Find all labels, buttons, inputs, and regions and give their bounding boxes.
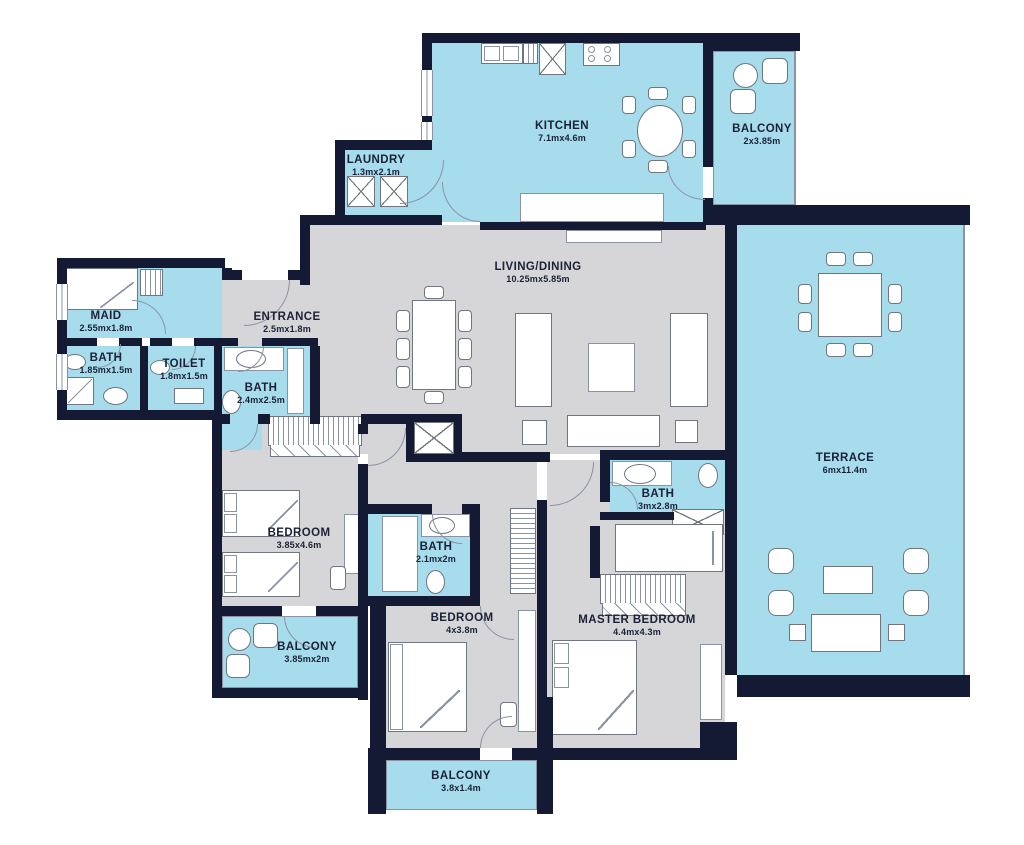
room-label-balcony-bottom: BALCONY 3.8x1.4m <box>431 769 491 795</box>
dining-chair <box>396 310 410 332</box>
dining-chair <box>424 391 444 404</box>
wall-segment <box>358 424 368 434</box>
kitchen-breakfast-bar <box>520 193 664 222</box>
shower <box>382 516 418 592</box>
closet-handle <box>712 531 714 565</box>
bed-fold-line <box>268 562 298 592</box>
room-name: BALCONY <box>277 640 337 654</box>
room-dims: 2x3.85m <box>732 136 792 147</box>
wall-segment <box>316 606 358 616</box>
room-label-bedroom-2: BEDROOM 4x3.8m <box>431 611 494 637</box>
stove-burner <box>588 46 595 53</box>
wall-segment <box>140 346 148 420</box>
terrace-sofa <box>811 614 881 652</box>
terrace-side-table <box>888 624 905 641</box>
room-label-maid: MAID 2.55mx1.8m <box>79 309 132 335</box>
room-dims: 7.1mx4.6m <box>535 133 589 144</box>
dining-table <box>412 300 456 390</box>
room-label-maid-bath: BATH 1.85mx1.5m <box>79 351 132 377</box>
kitchen-oven <box>539 43 566 75</box>
shower-line <box>68 379 92 403</box>
dining-chair <box>458 366 472 388</box>
floor-plan: KITCHEN 7.1mx4.6m BALCONY 2x3.85m LAUNDR… <box>0 0 1024 845</box>
wall-segment <box>462 504 480 514</box>
wall-segment <box>212 688 368 698</box>
wall-segment <box>119 338 142 346</box>
pillow <box>224 575 237 593</box>
dining-chair <box>396 338 410 360</box>
wall-segment <box>258 414 270 424</box>
room-name: BATH <box>237 381 285 395</box>
wall-segment <box>150 338 172 346</box>
terrace-chair <box>853 343 873 357</box>
wall-segment <box>600 450 737 460</box>
terrace-chair <box>826 343 846 357</box>
sink-counter <box>174 388 204 404</box>
room-dims: 2.1mx2m <box>416 554 456 565</box>
toilet <box>698 463 718 488</box>
wall-segment <box>57 338 97 346</box>
stove-burner <box>604 55 611 62</box>
kitchen-chair <box>648 160 668 173</box>
wall-segment <box>310 346 320 424</box>
window <box>421 122 433 140</box>
terrace-lounge-chair <box>903 548 929 574</box>
sink <box>624 464 656 484</box>
wall-segment <box>703 43 713 167</box>
room-dims: 10.25mx5.85m <box>495 274 582 285</box>
kitchen-sink-bowl <box>484 46 500 61</box>
room-label-toilet: TOILET 1.8mx1.5m <box>160 357 208 383</box>
window <box>56 284 68 320</box>
room-name: TOILET <box>160 357 208 371</box>
bath-cabinet <box>287 348 304 414</box>
terrace-side-table <box>789 624 806 641</box>
wall-segment <box>600 512 674 520</box>
sofa <box>670 313 708 407</box>
pillow <box>224 493 237 512</box>
wall-segment <box>600 460 610 502</box>
terrace-chair <box>888 284 902 304</box>
wall-segment <box>222 270 242 280</box>
wall-segment <box>368 504 432 514</box>
wall-segment <box>288 270 310 280</box>
wall-segment <box>310 215 442 225</box>
kitchen-chair <box>682 96 696 114</box>
room-label-balcony-left: BALCONY 3.85mx2m <box>277 640 337 666</box>
wall-segment <box>222 338 238 346</box>
balcony-chair <box>762 58 788 84</box>
kitchen-sink-bowl <box>503 46 519 61</box>
room-name: BEDROOM <box>431 611 494 625</box>
room-label-laundry: LAUNDRY 1.3mx2.1m <box>347 153 406 179</box>
room-dims: 1.85mx1.5m <box>79 365 132 376</box>
desk-chair <box>330 566 346 590</box>
room-dims: 3.85mx2m <box>277 654 337 665</box>
desk <box>518 610 536 732</box>
room-label-guest-bath: BATH 2.4mx2.5m <box>237 381 285 407</box>
room-dims: 2.4mx2.5m <box>237 395 285 406</box>
sink <box>103 387 128 405</box>
room-name: LAUNDRY <box>347 153 406 167</box>
coffee-table <box>588 343 635 392</box>
balcony-table <box>226 654 250 678</box>
room-name: BEDROOM <box>268 526 331 540</box>
room-label-terrace: TERRACE 6mx11.4m <box>816 451 874 477</box>
pillow <box>554 643 569 664</box>
room-name: MAID <box>79 309 132 323</box>
window <box>56 354 68 390</box>
kitchen-round-table <box>637 105 683 157</box>
room-label-entrance: ENTRANCE 2.5mx1.8m <box>253 310 320 336</box>
wall-segment <box>212 414 230 424</box>
wall-segment <box>262 338 318 346</box>
balcony-chair <box>253 623 278 648</box>
washing-machine <box>347 176 375 207</box>
window-line <box>794 51 796 205</box>
room-name: BATH <box>79 351 132 365</box>
column <box>414 422 454 454</box>
wall-segment <box>590 526 600 578</box>
room-label-bedroom-1: BEDROOM 3.85x4.6m <box>268 526 331 552</box>
room-label-master-bedroom: MASTER BEDROOM 4.4mx4.3m <box>578 613 695 639</box>
dining-chair <box>458 310 472 332</box>
terrace-chair <box>853 252 873 266</box>
wall-segment <box>713 33 800 51</box>
kitchen-drainer <box>523 43 538 64</box>
room-name: BATH <box>638 487 678 501</box>
wall-segment <box>537 697 553 814</box>
stove-burner <box>588 55 595 62</box>
dining-chair <box>396 366 410 388</box>
wall-segment <box>335 150 345 215</box>
hall-wardrobe <box>510 508 536 594</box>
stove-burner <box>604 46 611 53</box>
pillow <box>224 514 237 533</box>
wall-segment <box>368 760 386 814</box>
room-name: BALCONY <box>732 122 792 136</box>
terrace-lounge-chair <box>903 590 929 616</box>
kitchen-chair <box>682 140 696 158</box>
terrace-chair <box>798 284 812 304</box>
wardrobe-front <box>270 445 360 457</box>
terrace-table <box>818 273 882 337</box>
wall-segment <box>713 205 970 225</box>
room-name: BALCONY <box>431 769 491 783</box>
pillow <box>224 555 237 573</box>
wall-segment <box>212 424 222 696</box>
sofa <box>567 415 660 447</box>
wall-segment <box>358 464 368 616</box>
dining-chair <box>424 286 444 299</box>
dining-chair <box>458 338 472 360</box>
terrace-chair <box>888 312 902 332</box>
sofa <box>515 313 552 407</box>
window <box>421 70 433 116</box>
bed-fold-line <box>598 690 634 730</box>
room-name: MASTER BEDROOM <box>578 613 695 627</box>
terrace-lounge-chair <box>768 590 794 616</box>
wall-segment <box>470 514 480 606</box>
room-dims: 1.3mx2.1m <box>347 167 406 178</box>
kitchen-chair <box>622 96 636 114</box>
bed-fold-line <box>100 282 134 308</box>
pillow <box>554 667 569 688</box>
room-label-living-dining: LIVING/DINING 10.25mx5.85m <box>495 260 582 286</box>
balcony-chair <box>733 63 758 88</box>
room-dims: 1.8mx1.5m <box>160 371 208 382</box>
balcony-table <box>730 89 756 114</box>
room-dims: 3mx2.8m <box>638 501 678 512</box>
room-label-bath-2: BATH 2.1mx2m <box>416 540 456 566</box>
kitchen-chair <box>622 140 636 158</box>
terrace-chair <box>826 252 846 266</box>
room-dims: 3.85x4.6m <box>268 540 331 551</box>
wall-segment <box>361 414 409 424</box>
kitchen-chair <box>648 87 668 100</box>
balcony-chair <box>228 628 251 651</box>
wardrobe <box>600 574 686 604</box>
room-name: TERRACE <box>816 451 874 465</box>
window-line <box>963 225 965 675</box>
room-label-kitchen: KITCHEN 7.1mx4.6m <box>535 119 589 145</box>
dresser <box>700 644 722 720</box>
wall-segment <box>212 606 282 616</box>
side-table <box>522 420 547 445</box>
wall-segment <box>335 140 432 150</box>
wall-segment <box>422 33 713 43</box>
wall-segment <box>368 596 480 606</box>
walk-in-closet <box>615 524 723 572</box>
room-dims: 2.5mx1.8m <box>253 324 320 335</box>
room-name: KITCHEN <box>535 119 589 133</box>
room-dims: 6mx11.4m <box>816 465 874 476</box>
room-dims: 2.55mx1.8m <box>79 323 132 334</box>
room-name: ENTRANCE <box>253 310 320 324</box>
wall-segment <box>462 452 550 462</box>
room-dims: 4.4mx4.3m <box>578 627 695 638</box>
bed-fold-line <box>420 690 460 728</box>
wall-segment <box>737 675 970 697</box>
room-label-balcony-top: BALCONY 2x3.85m <box>732 122 792 148</box>
room-dims: 3.8x1.4m <box>431 783 491 794</box>
terrace-lounge-chair <box>768 548 794 574</box>
wall-segment <box>194 338 214 346</box>
wall-segment <box>700 722 737 750</box>
terrace-chair <box>798 312 812 332</box>
toilet <box>426 570 445 594</box>
wall-segment <box>57 258 225 268</box>
wall-segment <box>368 748 480 760</box>
side-table <box>675 420 698 443</box>
room-name: BATH <box>416 540 456 554</box>
headboard <box>390 644 403 730</box>
room-name: LIVING/DINING <box>495 260 582 274</box>
terrace-coffee-table <box>823 566 873 594</box>
room-label-master-bath: BATH 3mx2.8m <box>638 487 678 513</box>
wall-segment <box>370 606 386 760</box>
wall-segment <box>148 410 222 420</box>
wall-segment <box>480 222 706 230</box>
wall-segment <box>703 198 713 225</box>
maid-closet <box>140 269 163 296</box>
room-dims: 4x3.8m <box>431 625 494 636</box>
tv-unit <box>566 230 662 243</box>
